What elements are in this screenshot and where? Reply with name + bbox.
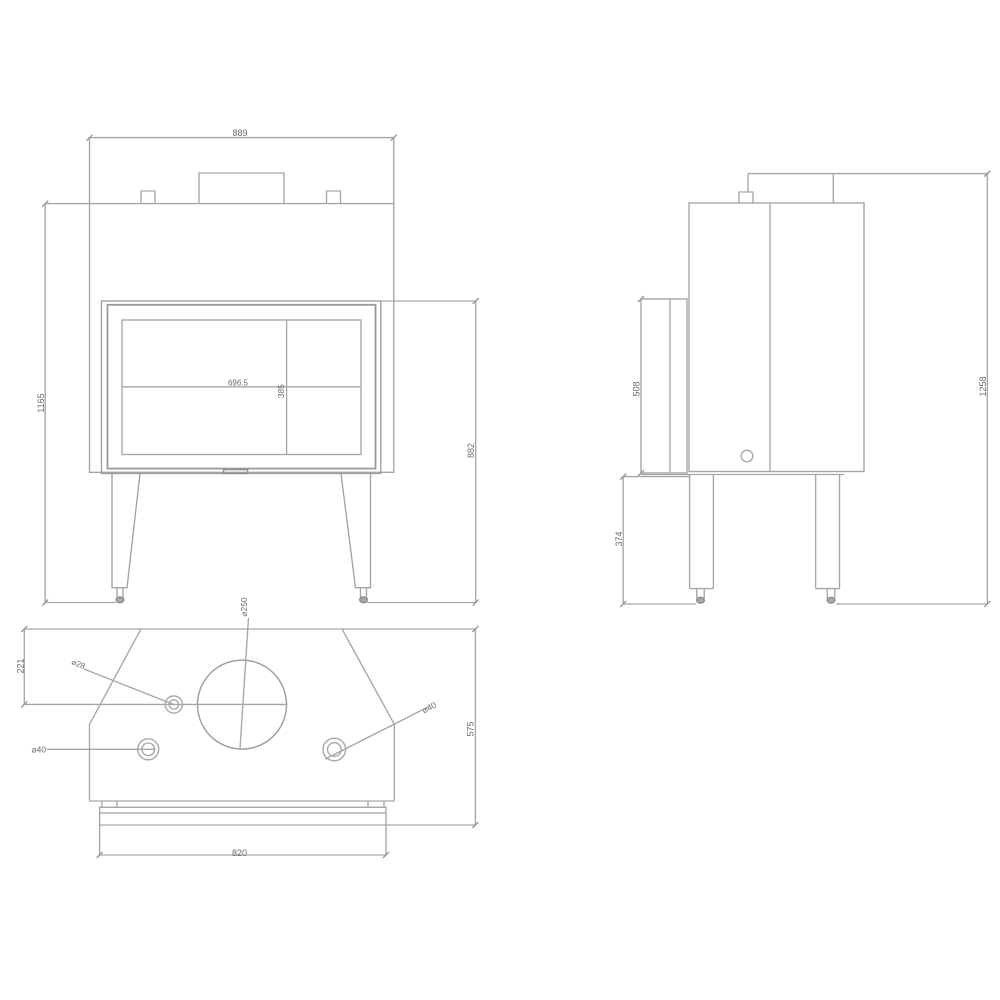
svg-text:1165: 1165 — [36, 393, 46, 412]
svg-text:⌀40: ⌀40 — [32, 745, 47, 755]
svg-text:696.5: 696.5 — [228, 378, 249, 387]
svg-text:⌀40: ⌀40 — [420, 700, 438, 716]
svg-text:1258: 1258 — [978, 376, 988, 396]
svg-text:820: 820 — [232, 848, 247, 858]
svg-text:575: 575 — [465, 721, 475, 736]
svg-text:374: 374 — [614, 531, 624, 546]
svg-text:882: 882 — [466, 443, 476, 458]
svg-text:889: 889 — [232, 128, 247, 138]
svg-text:221: 221 — [15, 658, 25, 673]
svg-text:⌀250: ⌀250 — [239, 597, 249, 617]
svg-text:385: 385 — [276, 384, 286, 398]
svg-text:508: 508 — [631, 381, 641, 396]
